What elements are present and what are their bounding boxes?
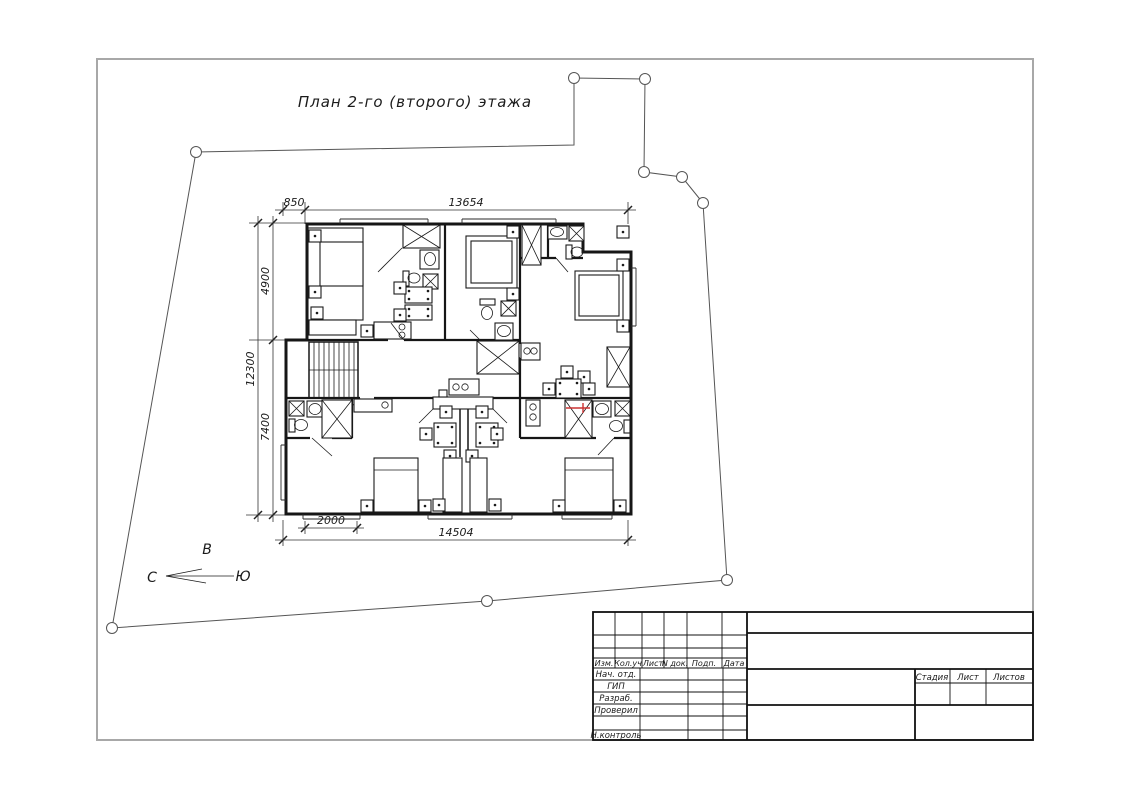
rooms-bottom-middle: [419, 406, 507, 512]
survey-point: [640, 74, 651, 85]
nightstand: [507, 288, 519, 300]
tb-col-sheets: Листов: [992, 673, 1025, 683]
nightstand: [553, 500, 565, 512]
tb-role-nkontrol: Н.контроль: [591, 731, 642, 741]
blueprint-page: План 2-го (второго) этажа В С Ю 850 1: [0, 0, 1131, 800]
north-arrow-icon: [166, 569, 234, 583]
shower-stall: [477, 341, 519, 374]
survey-point: [107, 623, 118, 634]
counter: [449, 379, 479, 395]
counter: [521, 343, 540, 360]
survey-point: [722, 575, 733, 586]
dim-12300: 12300: [244, 352, 257, 387]
counter: [354, 399, 392, 412]
wardrobe: [403, 225, 440, 248]
shower-stall: [565, 400, 592, 438]
dimension-top: 850 13654: [275, 196, 636, 224]
nightstand: [361, 500, 373, 512]
bathroom-bottom-right: [526, 400, 630, 455]
toilet: [480, 299, 495, 320]
dim-7400: 7400: [259, 413, 272, 441]
nightstand: [311, 307, 323, 319]
survey-point: [639, 167, 650, 178]
compass-north-label: С: [147, 570, 157, 586]
compass: В С Ю: [147, 542, 250, 586]
nightstand: [433, 499, 445, 511]
survey-point: [482, 596, 493, 607]
chair: [476, 406, 488, 418]
chair: [561, 366, 573, 378]
tb-col-koluch: Кол.уч: [614, 659, 642, 668]
survey-point: [698, 198, 709, 209]
tb-col-sheet: Лист: [956, 673, 980, 683]
door-leaf: [598, 438, 614, 455]
tb-col-stadia: Стадия: [916, 673, 949, 683]
stairs: [309, 342, 358, 398]
dim-2000: 2000: [317, 514, 345, 527]
bed: [374, 458, 418, 512]
bed: [470, 458, 487, 512]
table: [405, 305, 432, 320]
sink: [593, 401, 611, 417]
chair: [543, 383, 555, 395]
door-leaf: [378, 248, 402, 272]
compass-east-label: В: [202, 542, 212, 558]
door-leaf: [493, 409, 507, 423]
nightstand: [614, 500, 626, 512]
nightstand: [617, 226, 629, 238]
title-block: Изм. Кол.уч Лист N док. Подп. Дата Нач. …: [591, 612, 1033, 741]
sink: [548, 226, 567, 239]
dimension-left: 4900 12300 7400: [244, 216, 307, 522]
chair: [440, 406, 452, 418]
tb-col-podp: Подп.: [692, 659, 716, 668]
tb-role-nachotd: Нач. отд.: [596, 670, 637, 680]
dim-4900: 4900: [259, 267, 272, 295]
tb-role-gip: ГИП: [607, 682, 625, 692]
tb-col-data: Дата: [723, 659, 745, 668]
chair: [394, 309, 406, 321]
toilet: [610, 420, 631, 433]
chair: [420, 428, 432, 440]
shower-box: [501, 301, 516, 316]
shower-box: [289, 401, 304, 416]
bench: [309, 320, 356, 335]
bathroom-middle: [449, 341, 519, 395]
tb-col-list: Лист: [642, 659, 664, 668]
chair: [491, 428, 503, 440]
door-leaf: [312, 438, 332, 456]
bathroom-top-right: [548, 226, 584, 272]
toilet: [289, 419, 308, 432]
bedroom-bottom-left: [361, 458, 431, 512]
building-plan: [281, 219, 636, 519]
nightstand: [419, 500, 431, 512]
shower-box: [569, 226, 584, 241]
table: [556, 379, 581, 398]
nightstand: [617, 320, 629, 332]
table: [405, 287, 432, 303]
counter: [526, 400, 540, 426]
shower-box: [615, 401, 630, 416]
door-leaf: [556, 258, 568, 272]
bedroom-bottom-right: [553, 458, 626, 512]
dim-14504: 14504: [439, 526, 474, 539]
survey-point: [191, 147, 202, 158]
stool: [361, 325, 373, 337]
nightstand: [309, 286, 321, 298]
nightstand: [489, 499, 501, 511]
door-leaf: [419, 409, 433, 423]
tb-col-izm: Изм.: [595, 659, 614, 668]
bed: [443, 458, 462, 512]
tb-col-ndok: N док.: [662, 659, 688, 668]
sink: [495, 323, 513, 340]
tb-role-razrab: Разраб.: [599, 694, 632, 704]
bed: [565, 458, 613, 512]
survey-point: [677, 172, 688, 183]
wardrobe: [522, 225, 541, 265]
bedroom-top-left: [308, 225, 440, 339]
table: [434, 423, 456, 447]
floor-plan-drawing: План 2-го (второго) этажа В С Ю 850 1: [0, 0, 1131, 800]
dim-850: 850: [284, 196, 305, 209]
chair: [394, 282, 406, 294]
bedroom-top-middle: [466, 225, 541, 348]
wardrobe: [607, 347, 630, 387]
sink: [420, 250, 439, 269]
nightstand: [617, 259, 629, 271]
survey-point: [569, 73, 580, 84]
page-title: План 2-го (второго) этажа: [298, 93, 532, 111]
chair: [583, 383, 595, 395]
bathroom-bottom-left: [289, 399, 392, 456]
dim-13654: 13654: [449, 196, 484, 209]
shower-stall: [322, 400, 352, 438]
nightstand: [309, 230, 321, 242]
compass-south-label: Ю: [235, 569, 250, 585]
nightstand: [507, 226, 519, 238]
tb-role-proveril: Проверил: [594, 706, 638, 716]
site-boundary: [107, 73, 733, 634]
